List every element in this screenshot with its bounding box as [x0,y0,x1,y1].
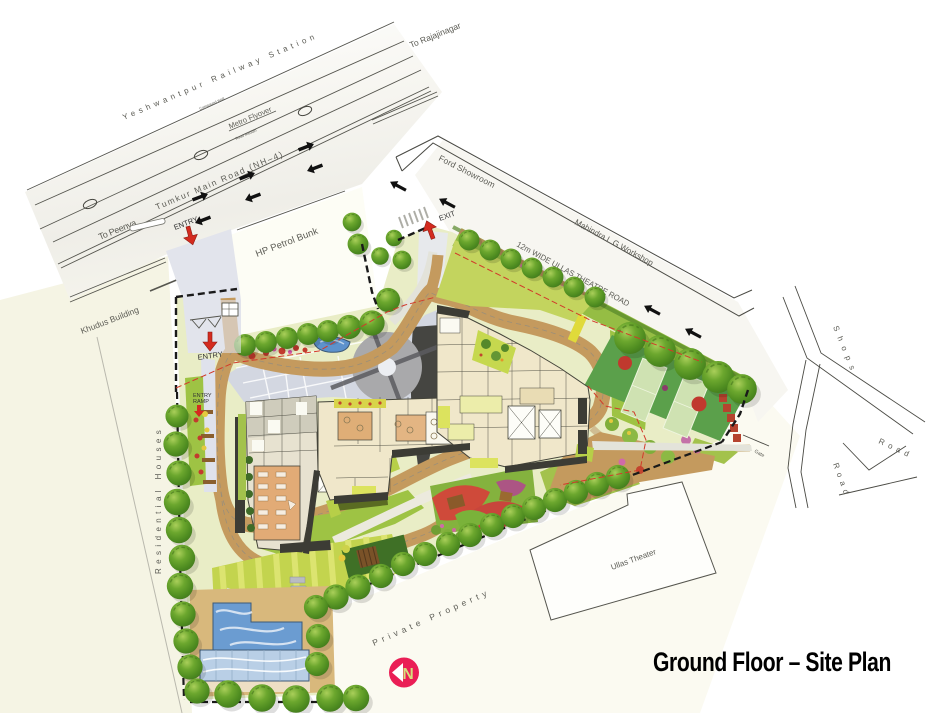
svg-text:Ground Floor – Site Plan: Ground Floor – Site Plan [653,647,891,677]
svg-text:N: N [403,666,414,683]
svg-text:Residential Houses: Residential Houses [154,426,163,574]
svg-text:RAMP: RAMP [193,399,209,405]
